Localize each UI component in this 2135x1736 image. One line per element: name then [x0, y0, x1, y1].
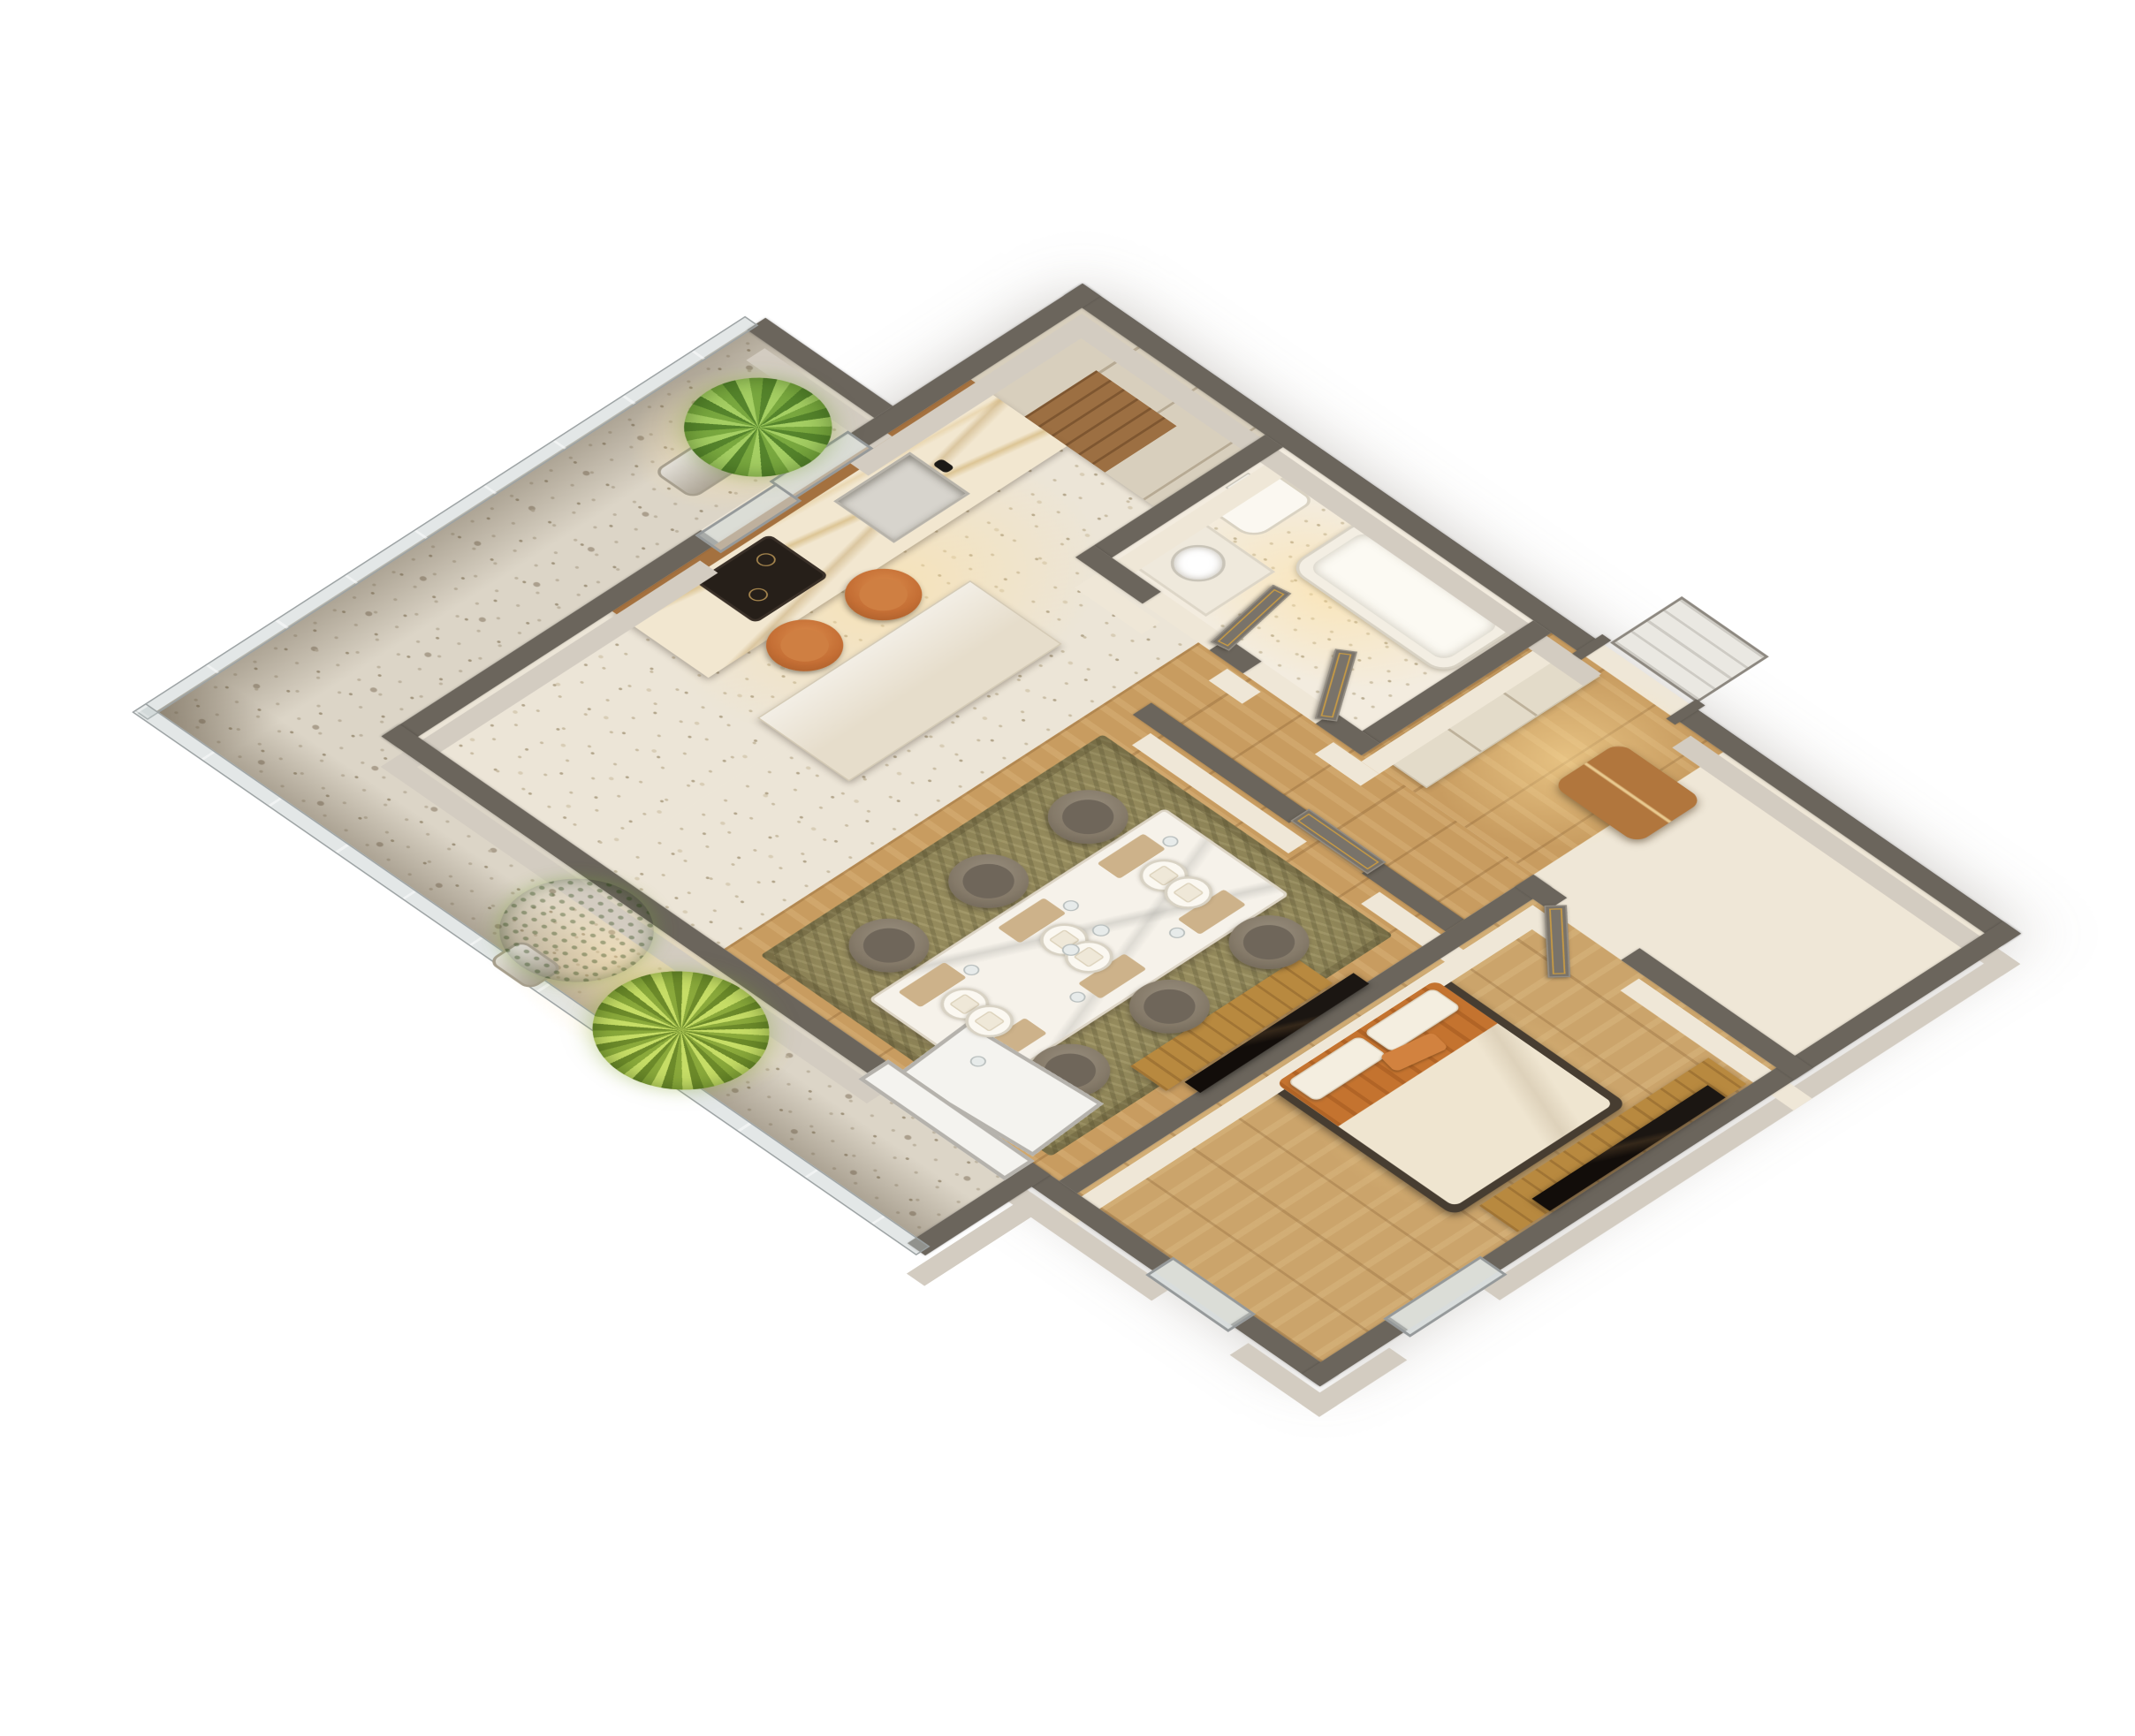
napkin	[973, 1010, 1006, 1032]
chair-seat	[1233, 918, 1305, 967]
chair-seat	[1052, 792, 1124, 841]
chair-seat	[952, 856, 1024, 905]
chair-seat	[770, 622, 840, 669]
door-bedroom	[1544, 905, 1570, 977]
chair-seat	[848, 571, 918, 618]
render-canvas	[0, 0, 2135, 1736]
napkin	[1172, 881, 1204, 903]
chair-seat	[853, 921, 925, 969]
isometric-floor-plan	[24, 159, 2110, 1562]
door-gold-inlay	[1549, 908, 1565, 974]
chair-seat	[1133, 982, 1205, 1030]
